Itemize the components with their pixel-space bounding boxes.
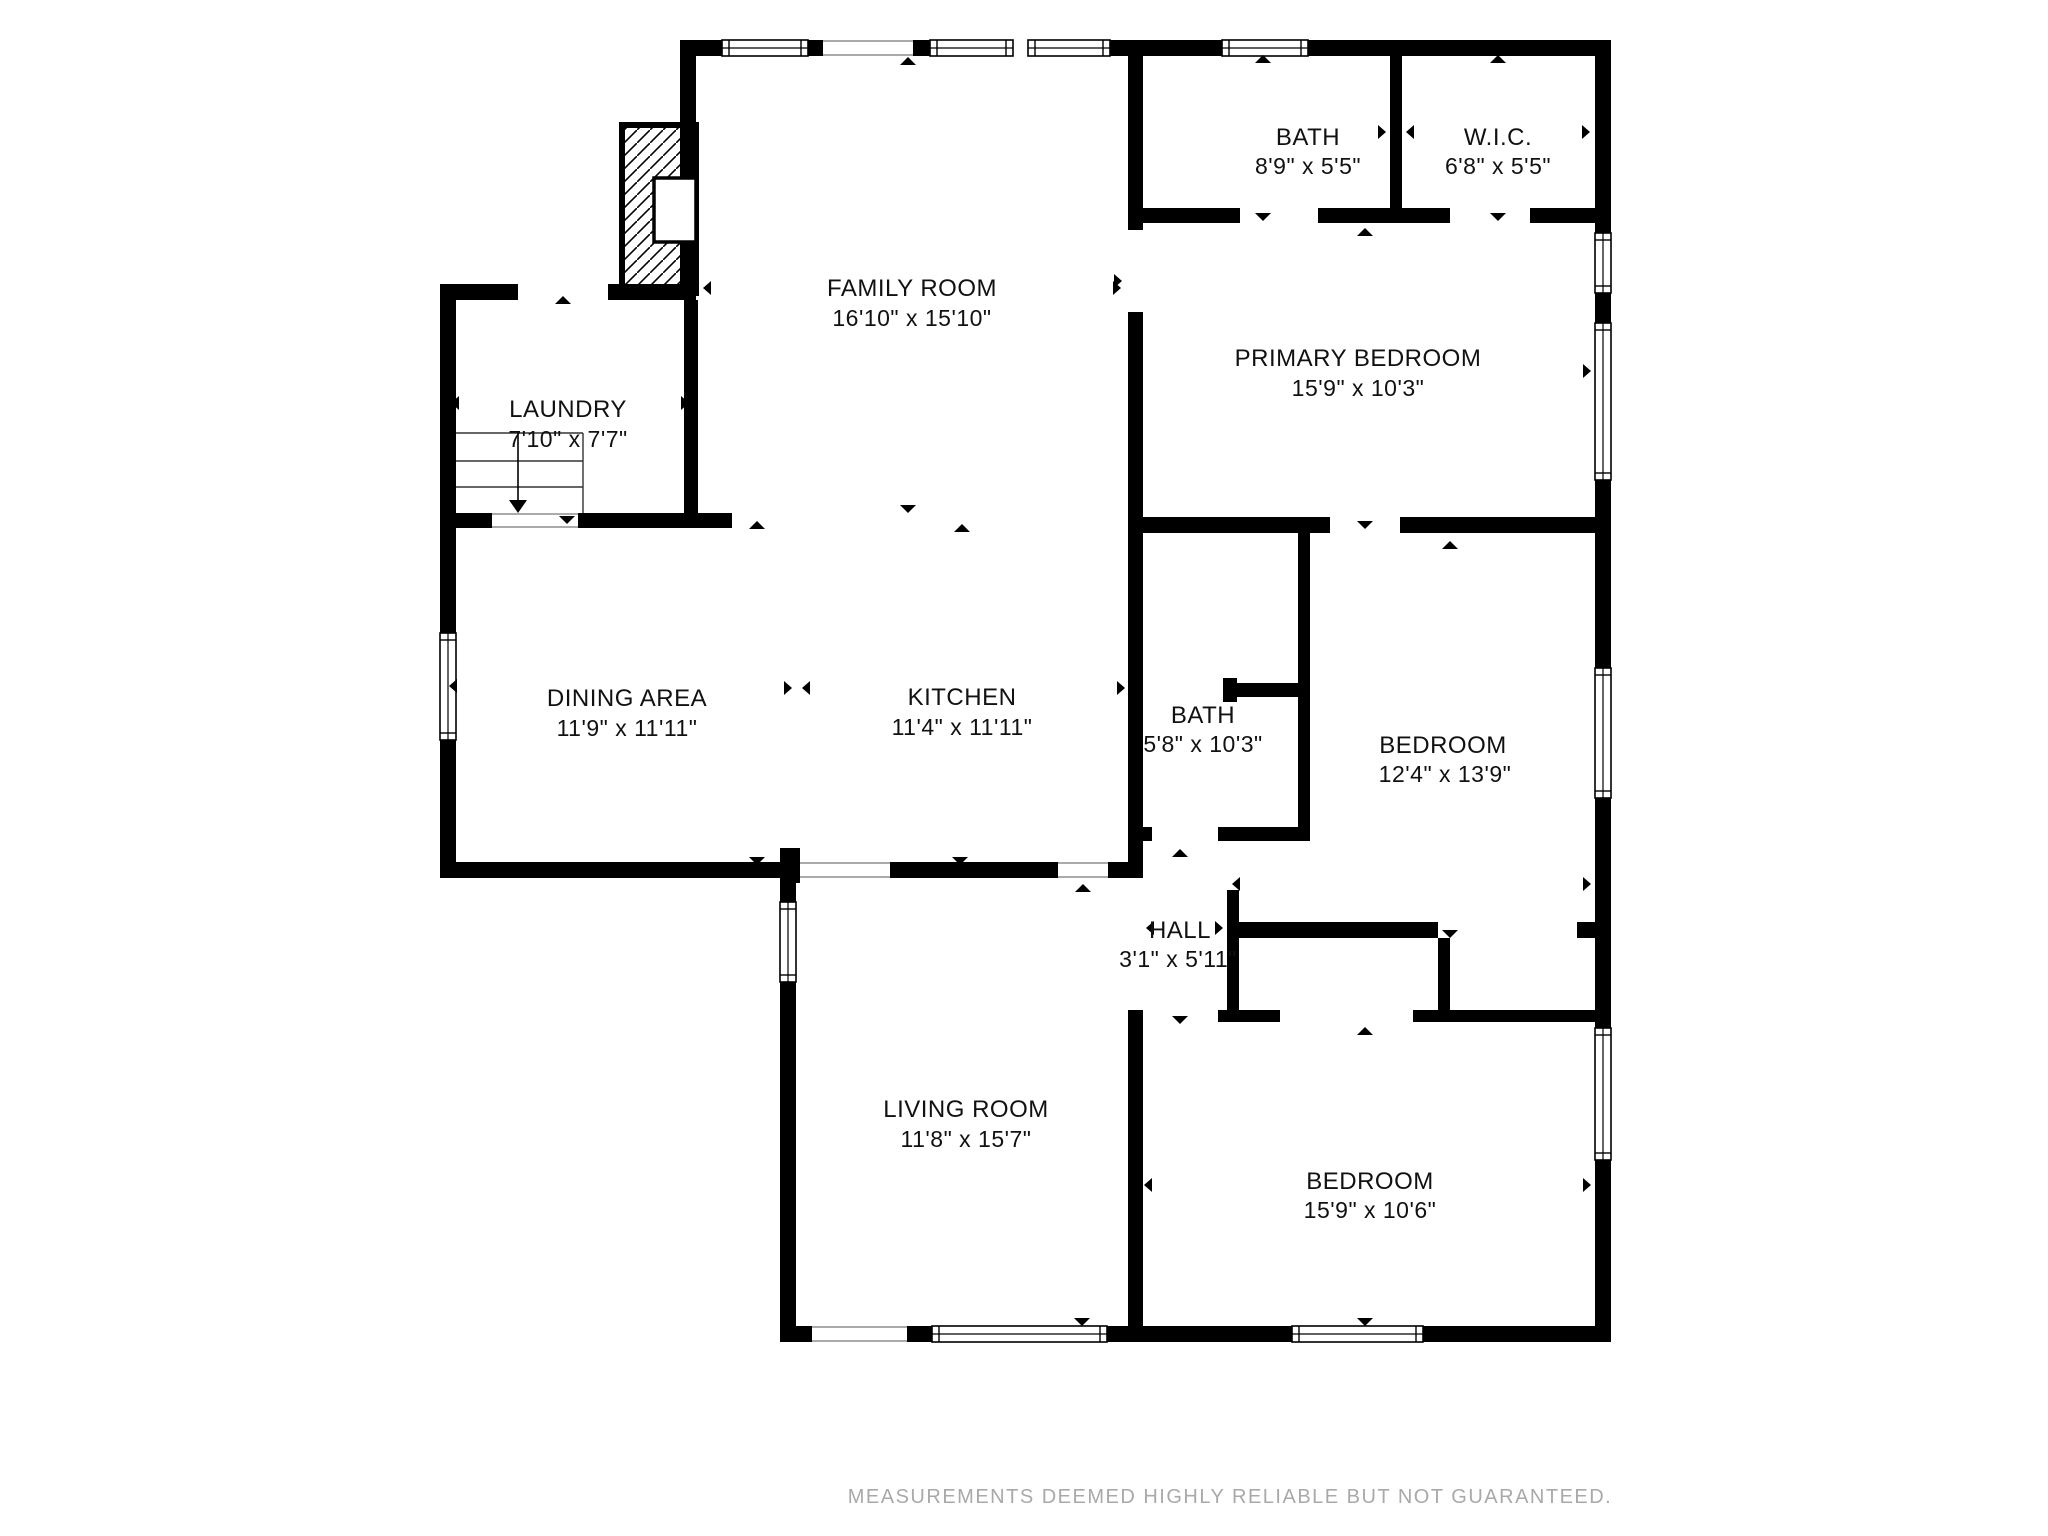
window-icon (1595, 233, 1611, 293)
floor-plan-canvas: FAMILY ROOM 16'10" x 15'10" BATH 8'9" x … (0, 0, 2048, 1536)
wall (1218, 1010, 1280, 1022)
wall (1318, 208, 1450, 223)
room-dims-laundry: 7'10" x 7'7" (508, 426, 627, 452)
window-icon (932, 1326, 1107, 1342)
wall (1128, 1010, 1143, 1342)
window-icon (1595, 668, 1611, 798)
wall (1298, 533, 1310, 827)
wall (1128, 312, 1143, 878)
wall (1227, 922, 1438, 938)
wall (1595, 480, 1611, 668)
wall (440, 284, 518, 300)
window-icon (1292, 1326, 1423, 1342)
room-dims-bath-middle: 5'8" x 10'3" (1143, 731, 1262, 757)
room-dims-bedroom-right: 12'4" x 13'9" (1379, 761, 1512, 787)
window-icon (930, 40, 1013, 56)
room-label-dining-area: DINING AREA (547, 685, 707, 712)
window-icon (1595, 323, 1611, 480)
room-dims-hall: 3'1" x 5'11" (1119, 946, 1237, 972)
opening (812, 1326, 907, 1342)
room-dims-living-room: 11'8" x 15'7" (901, 1126, 1032, 1152)
disclaimer-text: MEASUREMENTS DEEMED HIGHLY RELIABLE BUT … (848, 1486, 1613, 1508)
wall (1308, 40, 1611, 56)
wall (780, 883, 796, 902)
room-label-family-room: FAMILY ROOM (827, 275, 997, 302)
wall (1218, 827, 1310, 841)
room-dims-wic: 6'8" x 5'5" (1445, 153, 1551, 179)
wall (1595, 1160, 1611, 1342)
room-label-kitchen: KITCHEN (908, 684, 1017, 711)
window-icon (1595, 1028, 1611, 1160)
wall (1577, 922, 1595, 938)
wall (1413, 1010, 1595, 1022)
room-label-bedroom-bottom: BEDROOM (1306, 1168, 1434, 1195)
wall (1223, 678, 1237, 702)
wall (1595, 293, 1611, 323)
fireplace-firebox (654, 178, 696, 242)
room-label-bath-middle: BATH (1171, 702, 1235, 729)
page-background (0, 0, 2048, 1536)
room-label-bedroom-right: BEDROOM (1379, 732, 1507, 759)
opening-gap (812, 1326, 907, 1342)
wall (440, 862, 780, 878)
wall (1438, 938, 1450, 1010)
wall (440, 284, 456, 878)
window-icon (1028, 40, 1110, 56)
opening (800, 862, 890, 878)
wall (440, 513, 492, 528)
room-dims-bath-top: 8'9" x 5'5" (1255, 153, 1361, 179)
wall (1595, 40, 1611, 233)
room-dims-bedroom-bottom: 15'9" x 10'6" (1304, 1197, 1437, 1223)
window-icon (722, 40, 808, 56)
wall (1138, 827, 1152, 841)
wall (907, 1326, 932, 1342)
wall (1423, 1326, 1611, 1342)
opening-gap (823, 40, 913, 56)
wall (1128, 208, 1240, 223)
room-label-primary-bedroom: PRIMARY BEDROOM (1235, 345, 1482, 372)
room-dims-family-room: 16'10" x 15'10" (832, 305, 991, 331)
wall (780, 982, 796, 1342)
room-label-bath-top: BATH (1276, 124, 1340, 151)
wall (1128, 56, 1143, 230)
wall (1595, 798, 1611, 1028)
wall (1110, 40, 1222, 56)
wall (578, 513, 732, 528)
wall (808, 40, 823, 56)
room-label-wic: W.I.C. (1464, 124, 1532, 151)
room-dims-primary-bedroom: 15'9" x 10'3" (1292, 375, 1425, 401)
wall (780, 1326, 812, 1342)
opening (823, 40, 913, 56)
wall (890, 862, 1058, 878)
room-label-laundry: LAUNDRY (509, 396, 627, 423)
room-dims-dining-area: 11'9" x 11'11" (557, 715, 698, 741)
chimney-fireplace (622, 125, 696, 293)
wall (780, 848, 800, 883)
room-label-living-room: LIVING ROOM (883, 1096, 1049, 1123)
wall (684, 300, 698, 513)
wall (1390, 56, 1402, 208)
window-icon (1222, 40, 1308, 56)
room-dims-kitchen: 11'4" x 11'11" (892, 714, 1033, 740)
wall (1530, 208, 1611, 223)
opening (1058, 862, 1108, 878)
wall (680, 40, 722, 56)
opening-gap (800, 862, 890, 878)
wall (1128, 517, 1330, 533)
wall (1107, 1326, 1292, 1342)
wall (1400, 517, 1611, 533)
wall (913, 40, 930, 56)
room-label-hall: HALL (1149, 917, 1211, 944)
opening-gap (1058, 862, 1108, 878)
window-icon (780, 902, 796, 982)
